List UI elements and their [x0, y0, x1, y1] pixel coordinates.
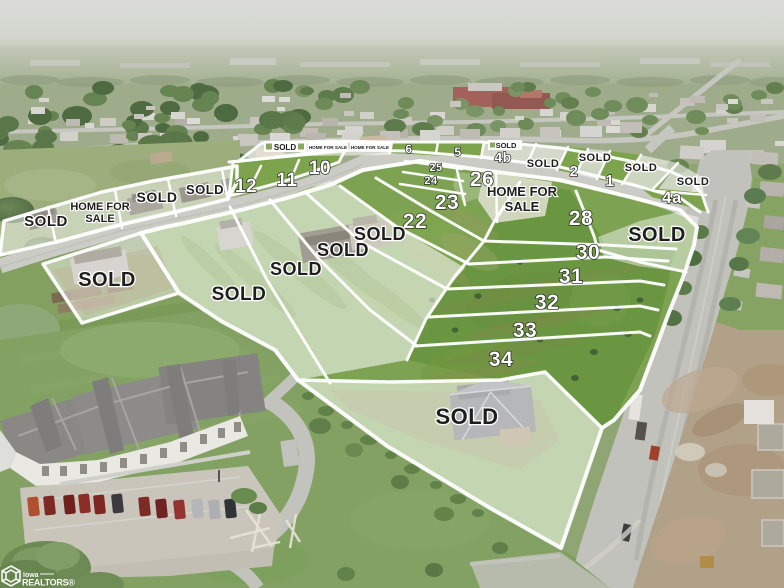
svg-text:SOLD: SOLD: [579, 152, 612, 164]
svg-text:SOLD: SOLD: [317, 240, 369, 260]
svg-text:30: 30: [576, 241, 600, 264]
svg-text:11: 11: [276, 170, 297, 191]
svg-text:SOLD: SOLD: [186, 182, 224, 197]
svg-text:23: 23: [435, 191, 459, 214]
svg-text:SOLD: SOLD: [625, 162, 658, 174]
svg-text:HOME FOR: HOME FOR: [487, 184, 558, 199]
svg-text:SOLD: SOLD: [212, 284, 267, 305]
svg-text:HOME FOR SALE: HOME FOR SALE: [309, 145, 347, 150]
svg-text:SOLD: SOLD: [677, 176, 710, 188]
svg-text:SOLD: SOLD: [24, 213, 68, 230]
svg-text:4a: 4a: [662, 188, 682, 207]
svg-text:SALE: SALE: [85, 213, 114, 225]
svg-text:SOLD: SOLD: [270, 259, 322, 279]
svg-text:1: 1: [605, 173, 614, 190]
svg-text:SOLD: SOLD: [274, 143, 296, 152]
svg-text:28: 28: [569, 207, 593, 230]
svg-text:6: 6: [405, 142, 412, 156]
svg-text:SOLD: SOLD: [496, 141, 517, 150]
svg-text:31: 31: [559, 265, 583, 288]
svg-text:SOLD: SOLD: [628, 224, 686, 246]
svg-text:REALTORS®: REALTORS®: [22, 578, 75, 588]
svg-text:SOLD: SOLD: [527, 158, 560, 170]
svg-text:12: 12: [235, 176, 257, 197]
svg-text:32: 32: [535, 291, 559, 314]
svg-text:25: 25: [429, 162, 442, 174]
svg-text:HOME FOR SALE: HOME FOR SALE: [351, 145, 389, 150]
svg-text:24: 24: [424, 175, 438, 187]
svg-text:34: 34: [489, 348, 513, 371]
svg-text:33: 33: [513, 319, 537, 342]
svg-text:22: 22: [403, 210, 427, 233]
svg-text:4b: 4b: [494, 149, 511, 165]
svg-text:10: 10: [309, 158, 331, 179]
svg-text:SOLD: SOLD: [435, 404, 498, 429]
svg-text:SALE: SALE: [505, 199, 540, 214]
svg-text:HOME FOR: HOME FOR: [70, 201, 129, 213]
svg-text:2: 2: [570, 163, 579, 180]
svg-text:SOLD: SOLD: [78, 269, 136, 291]
svg-text:SOLD: SOLD: [137, 189, 178, 205]
svg-text:5: 5: [454, 145, 461, 159]
